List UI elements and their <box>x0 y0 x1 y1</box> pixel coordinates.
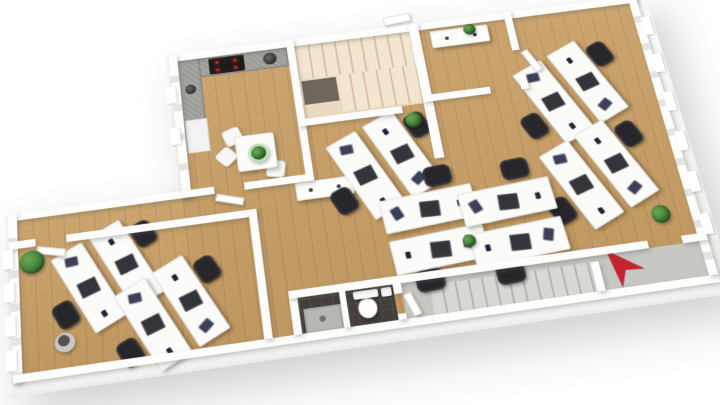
laptop <box>128 293 141 304</box>
phone <box>405 251 412 259</box>
phone <box>568 122 576 129</box>
floor-plan-render <box>0 0 720 405</box>
window-sill <box>2 249 13 270</box>
monitor <box>568 174 594 196</box>
shower-drain <box>319 315 326 322</box>
window-sill <box>170 127 182 146</box>
laptop <box>65 257 78 268</box>
burner <box>213 59 220 66</box>
monitor <box>353 164 379 186</box>
wall-bathroom-right-b <box>398 313 407 320</box>
phone <box>566 57 574 64</box>
knob <box>445 36 449 40</box>
phone <box>101 309 109 317</box>
phone <box>594 137 602 145</box>
burner <box>214 67 221 74</box>
burner <box>232 64 239 71</box>
monitor <box>509 233 532 251</box>
window-sill <box>3 282 14 303</box>
laptop <box>544 228 554 240</box>
floor-plan <box>3 0 720 384</box>
window-sill <box>166 86 177 104</box>
burner <box>231 57 238 64</box>
phone <box>535 192 542 199</box>
monitor <box>76 276 101 299</box>
bathroom-sink <box>380 287 392 297</box>
laptop <box>526 73 540 83</box>
phone <box>171 274 179 282</box>
phone <box>485 244 492 252</box>
phone <box>382 128 390 136</box>
monitor <box>603 152 629 174</box>
laptop <box>628 181 642 195</box>
stair-void <box>301 77 339 105</box>
window-sill <box>6 350 17 372</box>
phone <box>597 206 605 214</box>
monitor <box>140 313 165 337</box>
monitor <box>497 193 520 211</box>
monitor <box>541 91 566 112</box>
laptop <box>390 207 404 221</box>
monitor <box>419 200 442 218</box>
wall-bathroom-right-a <box>392 283 402 294</box>
monitor <box>114 253 139 276</box>
laptop <box>340 145 354 155</box>
laptop <box>199 318 214 332</box>
monitor <box>178 289 203 312</box>
laptop <box>598 98 612 111</box>
phone <box>108 238 116 246</box>
monitor <box>390 143 415 165</box>
knob <box>309 188 314 192</box>
monitor <box>575 71 600 91</box>
window-sill <box>4 316 15 338</box>
laptop <box>468 200 482 214</box>
monitor <box>430 240 453 258</box>
laptop <box>553 154 567 164</box>
dishwasher <box>185 118 211 154</box>
